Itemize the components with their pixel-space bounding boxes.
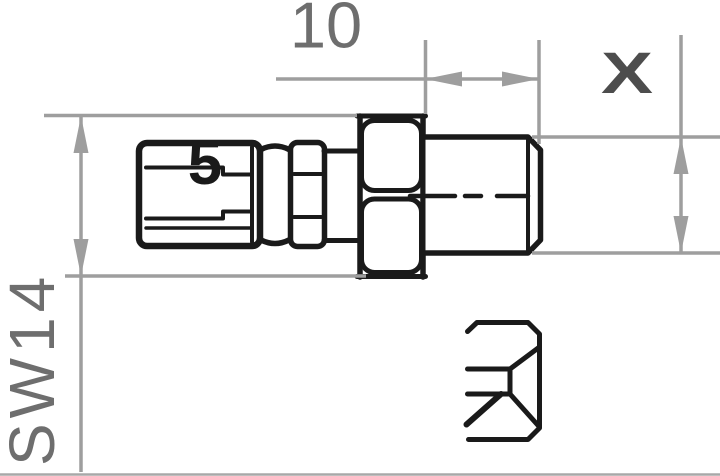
diameter-dim-label: X [601,41,653,106]
diameter-arrow-down [674,216,689,253]
crimp-bulge-bottom [261,240,289,244]
technical-drawing: 5 10 SW14 X [0,0,720,476]
wrench-arrow-down [74,239,89,276]
symbol-lower-diagonal [510,394,540,427]
ferrule-band [291,143,325,247]
drawing-svg: 5 10 SW14 X [0,0,720,476]
wrench-size-label: SW14 [0,272,68,466]
hex-flat-lower [362,199,422,273]
symbol-flare-diagonal [467,394,502,425]
diameter-arrow-up [674,137,689,174]
hex-flat-upper [362,121,422,191]
part-marking-text: 5 [188,129,222,198]
symbol-upper-diagonal [510,347,540,369]
wrench-arrow-up [74,116,89,153]
fitting-end-profile-symbol [467,323,540,440]
length-dim-label: 10 [290,0,362,62]
length-arrow-right [502,72,539,87]
length-arrow-left [425,72,462,87]
symbol-outline [468,323,540,440]
crimp-bulge-top [261,146,289,150]
